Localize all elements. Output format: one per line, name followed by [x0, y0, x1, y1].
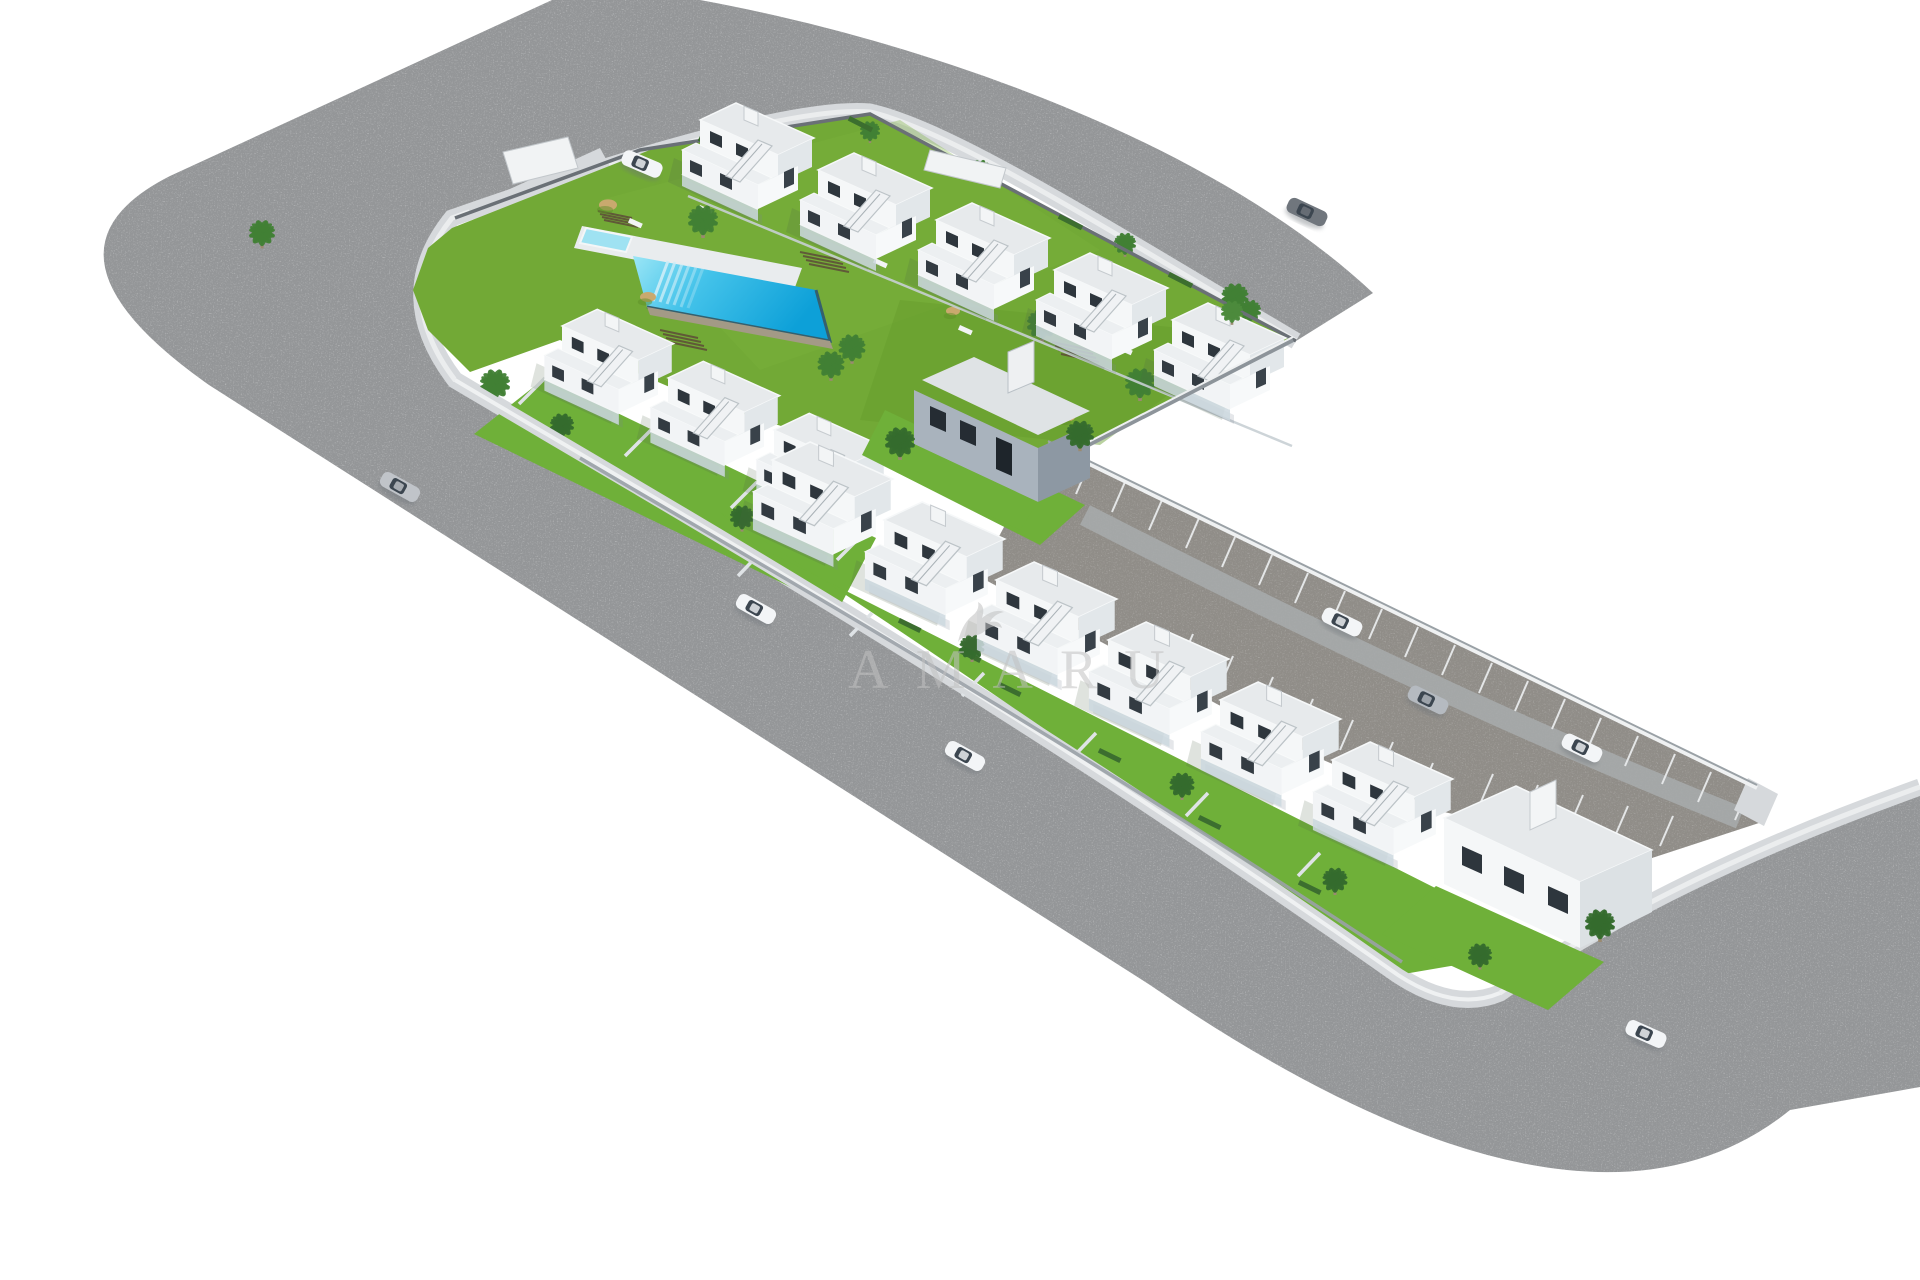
svg-text:AMARU: AMARU [848, 639, 1191, 701]
